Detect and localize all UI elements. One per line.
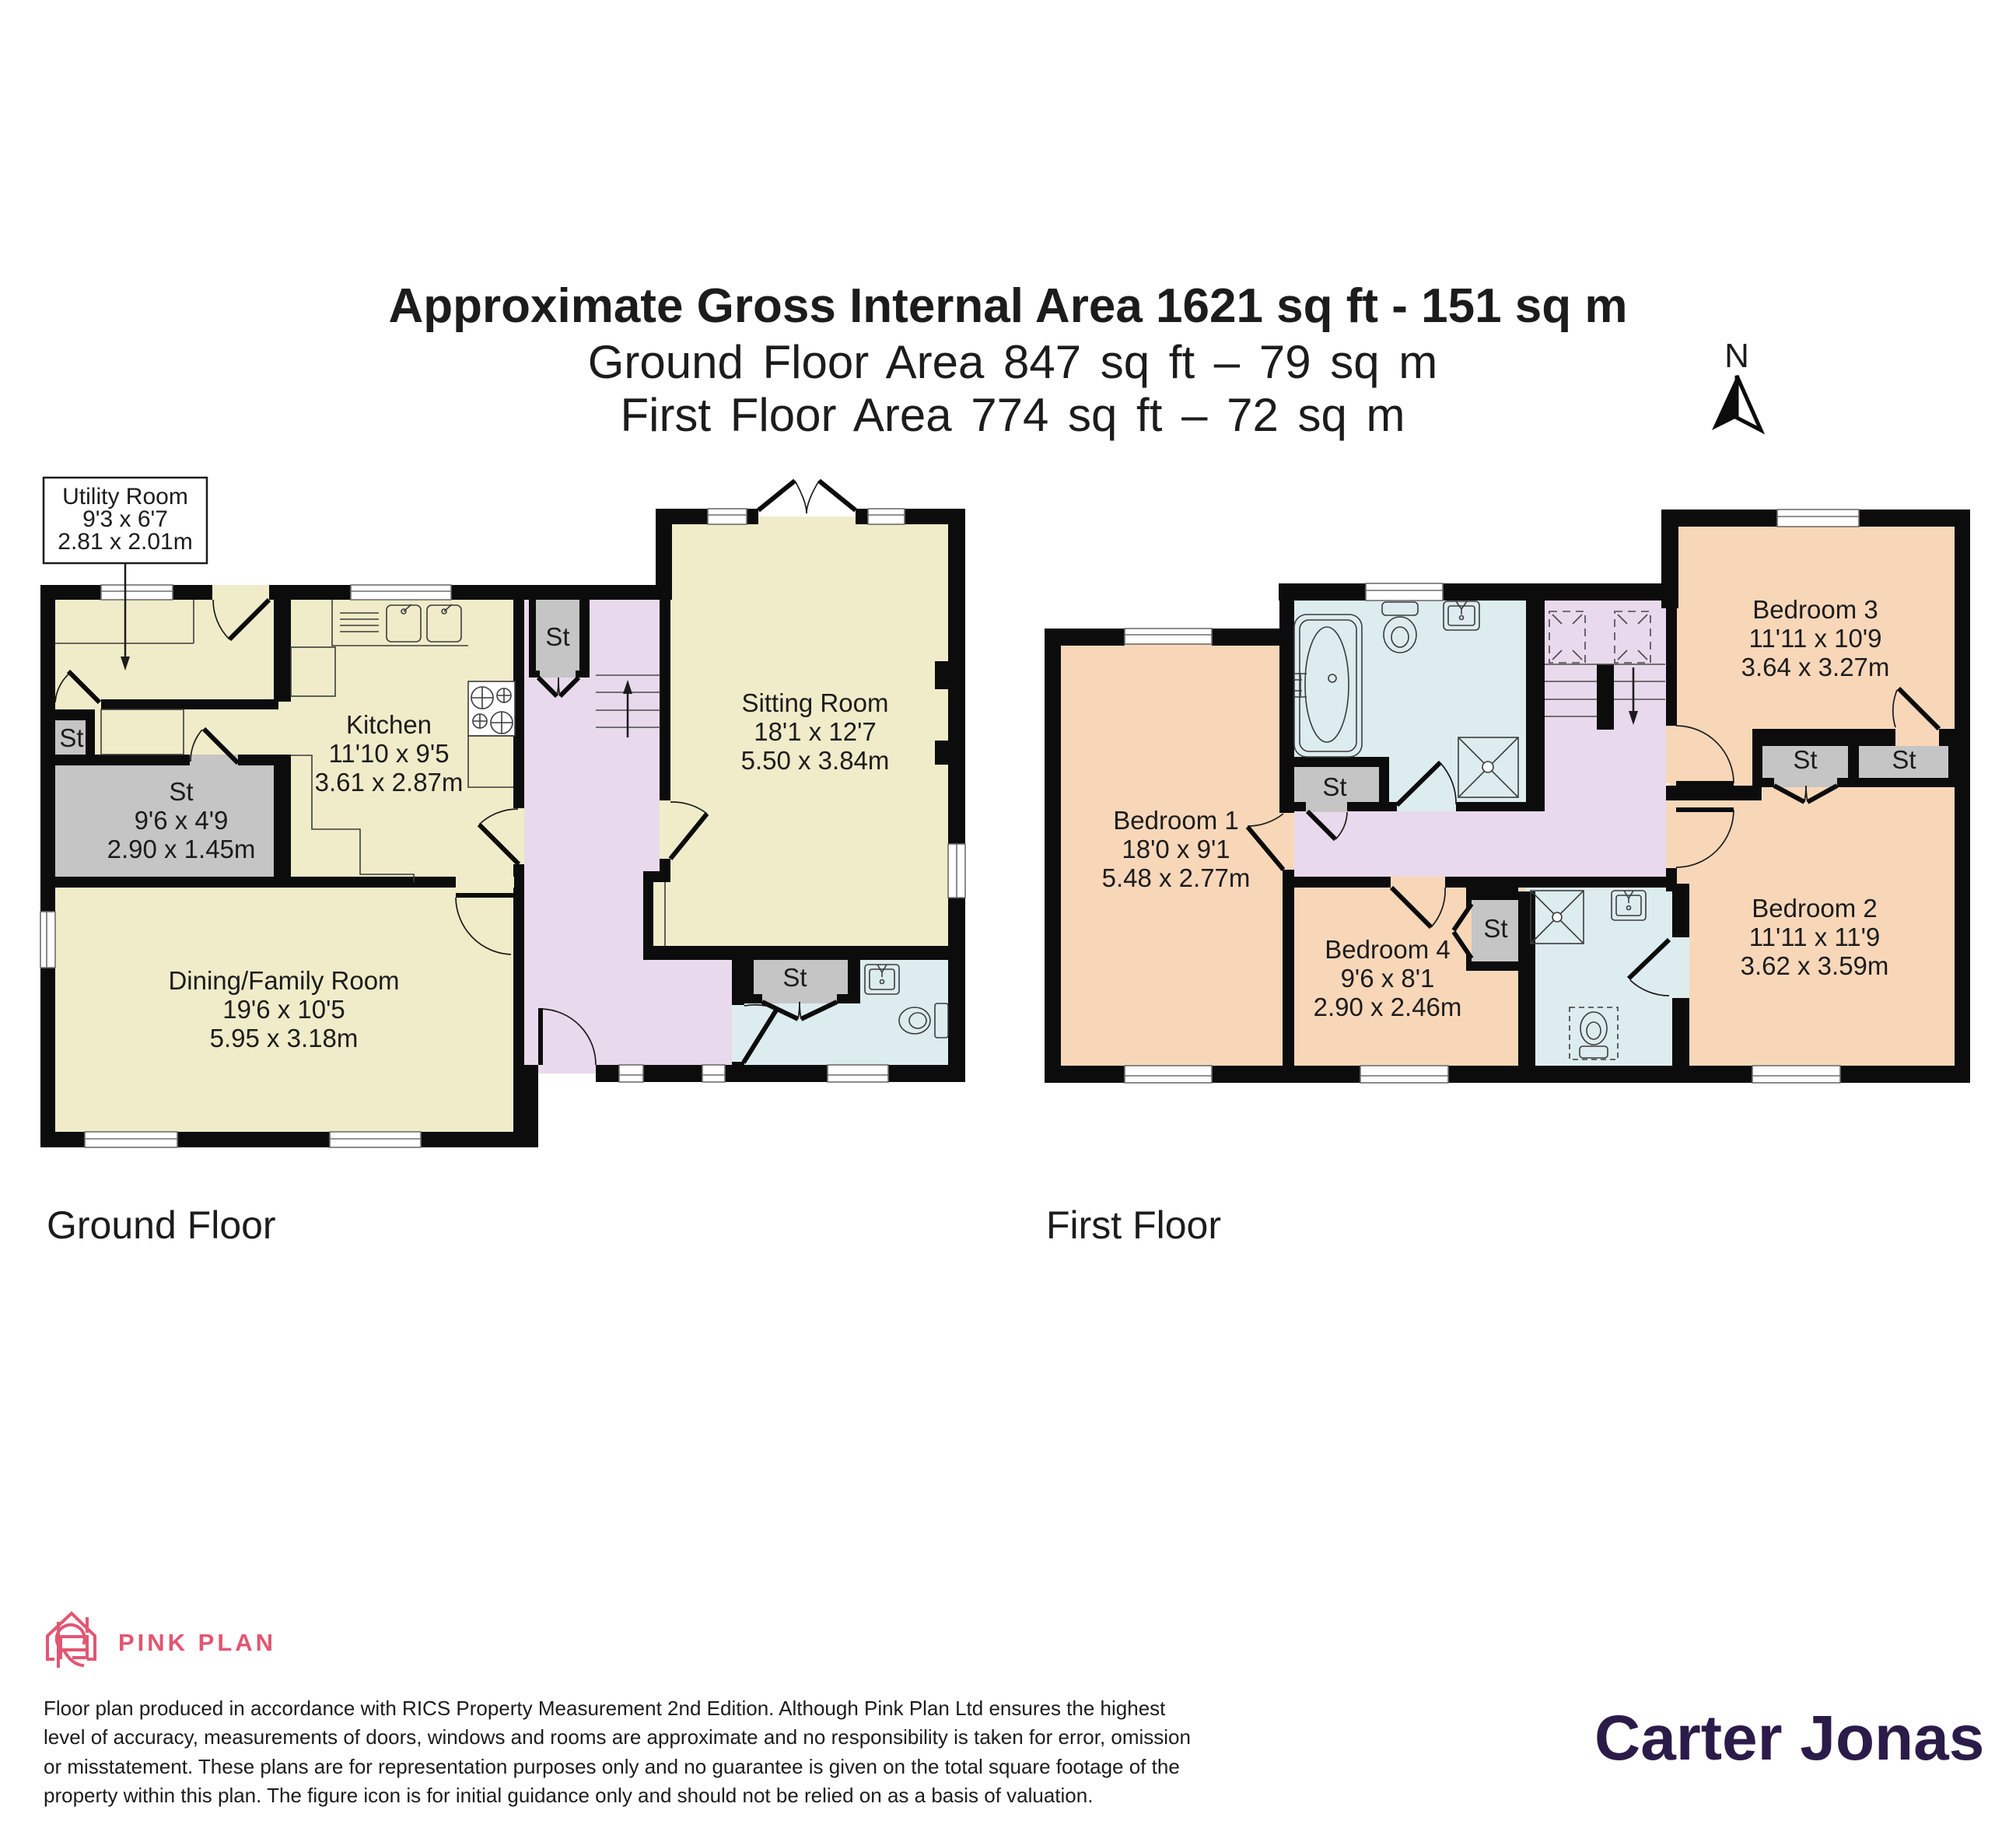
- svg-text:9'6 x 4'9: 9'6 x 4'9: [135, 806, 229, 835]
- svg-text:or misstatement. These plans a: or misstatement. These plans are for rep…: [44, 1755, 1180, 1778]
- svg-text:2.90 x 2.46m: 2.90 x 2.46m: [1314, 993, 1462, 1021]
- svg-text:St: St: [1322, 772, 1346, 801]
- svg-text:Dining/Family Room: Dining/Family Room: [168, 966, 399, 995]
- svg-text:11'10 x 9'5: 11'10 x 9'5: [328, 739, 449, 768]
- svg-text:property within this plan. The: property within this plan. The figure ic…: [44, 1784, 1093, 1807]
- svg-text:5.48 x 2.77m: 5.48 x 2.77m: [1102, 863, 1251, 892]
- svg-text:First Floor Area 774 sq ft – 7: First Floor Area 774 sq ft – 72 sq m: [620, 389, 1405, 441]
- svg-text:3.61 x 2.87m: 3.61 x 2.87m: [315, 768, 464, 797]
- svg-text:St: St: [1483, 914, 1507, 943]
- svg-text:Floor plan produced in accorda: Floor plan produced in accordance with R…: [44, 1697, 1166, 1720]
- svg-text:Bedroom 1: Bedroom 1: [1113, 806, 1238, 835]
- svg-text:N: N: [1724, 337, 1749, 375]
- svg-text:St: St: [1892, 745, 1916, 774]
- svg-text:5.95 x 3.18m: 5.95 x 3.18m: [210, 1024, 359, 1052]
- svg-text:St: St: [782, 963, 807, 992]
- svg-text:3.64 x 3.27m: 3.64 x 3.27m: [1741, 653, 1890, 681]
- svg-text:5.50 x 3.84m: 5.50 x 3.84m: [741, 746, 890, 775]
- svg-text:Sitting Room: Sitting Room: [742, 688, 889, 717]
- svg-text:Bedroom 4: Bedroom 4: [1325, 935, 1450, 964]
- svg-text:2.90 x 1.45m: 2.90 x 1.45m: [107, 835, 256, 863]
- svg-text:Carter Jonas: Carter Jonas: [1594, 1703, 1984, 1774]
- svg-text:Bedroom 3: Bedroom 3: [1752, 595, 1878, 624]
- svg-text:First Floor: First Floor: [1046, 1203, 1221, 1247]
- svg-text:Approximate Gross Internal Are: Approximate Gross Internal Area 1621 sq …: [388, 279, 1627, 333]
- svg-text:St: St: [169, 777, 193, 806]
- svg-text:Bedroom 2: Bedroom 2: [1752, 894, 1877, 923]
- svg-text:19'6 x 10'5: 19'6 x 10'5: [222, 995, 345, 1024]
- svg-text:18'0 x 9'1: 18'0 x 9'1: [1122, 835, 1230, 863]
- svg-text:11'11 x 10'9: 11'11 x 10'9: [1748, 624, 1881, 653]
- svg-text:11'11 x 11'9: 11'11 x 11'9: [1749, 923, 1881, 951]
- svg-text:9'6 x 8'1: 9'6 x 8'1: [1341, 964, 1435, 993]
- svg-text:St: St: [1793, 745, 1817, 774]
- svg-text:2.81 x 2.01m: 2.81 x 2.01m: [58, 529, 192, 555]
- svg-text:PINK PLAN: PINK PLAN: [118, 1629, 276, 1656]
- svg-text:3.62 x 3.59m: 3.62 x 3.59m: [1741, 951, 1889, 980]
- svg-text:Kitchen: Kitchen: [346, 710, 432, 739]
- svg-text:18'1 x 12'7: 18'1 x 12'7: [754, 717, 877, 746]
- svg-text:level of accuracy, measurement: level of accuracy, measurements of doors…: [44, 1725, 1191, 1749]
- svg-text:St: St: [59, 723, 83, 752]
- svg-text:Ground Floor: Ground Floor: [47, 1203, 276, 1247]
- svg-text:Ground Floor Area 847 sq ft –: Ground Floor Area 847 sq ft – 79 sq m: [588, 336, 1438, 388]
- svg-text:St: St: [545, 622, 569, 651]
